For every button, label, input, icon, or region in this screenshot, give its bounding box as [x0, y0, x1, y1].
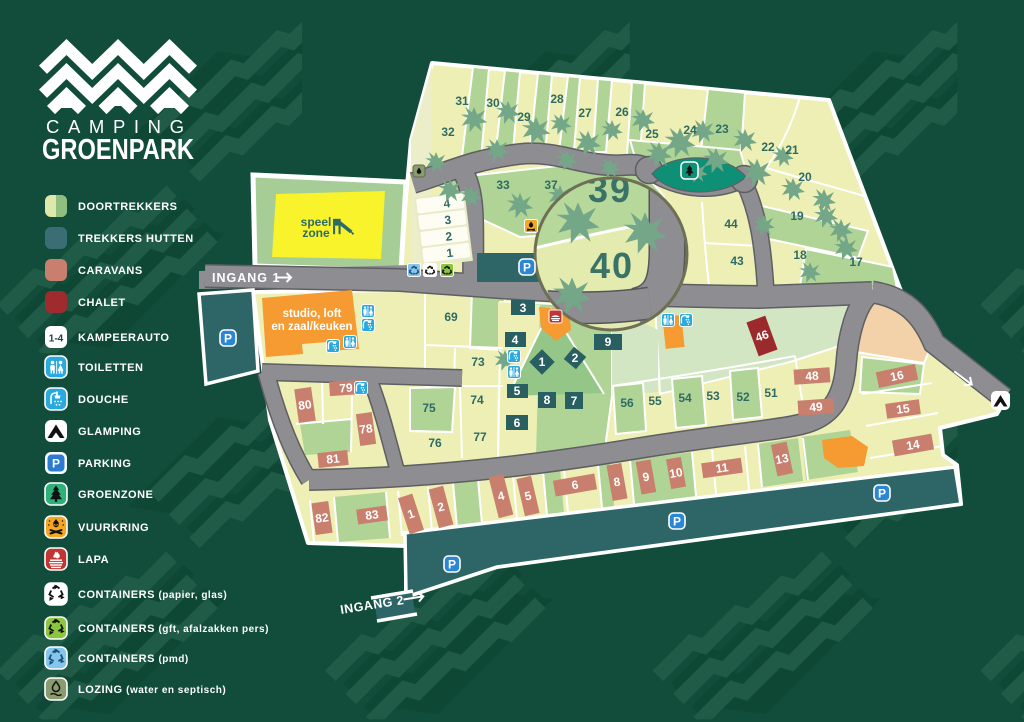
svg-text:studio, loft: studio, loft — [283, 308, 342, 320]
svg-text:CONTAINERS (pmd): CONTAINERS (pmd) — [78, 653, 189, 665]
svg-text:33: 33 — [496, 178, 510, 192]
svg-text:6: 6 — [514, 416, 521, 430]
svg-text:8: 8 — [544, 393, 551, 407]
svg-text:77: 77 — [473, 430, 487, 444]
svg-text:52: 52 — [736, 390, 750, 404]
svg-text:VUURKRING: VUURKRING — [78, 522, 149, 534]
svg-text:GLAMPING: GLAMPING — [78, 426, 141, 438]
svg-text:P: P — [52, 457, 60, 471]
svg-text:74: 74 — [470, 393, 484, 407]
svg-text:11: 11 — [715, 460, 730, 476]
svg-text:78: 78 — [358, 421, 373, 437]
svg-text:43: 43 — [730, 254, 744, 268]
svg-text:53: 53 — [706, 389, 720, 403]
svg-text:28: 28 — [550, 92, 564, 106]
svg-text:18: 18 — [793, 248, 807, 262]
svg-text:1: 1 — [539, 355, 546, 369]
svg-text:DOUCHE: DOUCHE — [78, 394, 129, 406]
svg-text:26: 26 — [615, 105, 629, 119]
svg-text:7: 7 — [571, 394, 578, 408]
svg-text:en zaal/keuken: en zaal/keuken — [271, 321, 352, 333]
svg-text:2: 2 — [572, 351, 579, 365]
svg-text:81: 81 — [326, 451, 341, 466]
svg-text:PARKING: PARKING — [78, 458, 131, 470]
svg-text:30: 30 — [486, 96, 500, 110]
svg-text:48: 48 — [805, 369, 820, 384]
svg-text:5: 5 — [514, 384, 521, 398]
svg-text:29: 29 — [517, 110, 531, 124]
svg-text:GROENZONE: GROENZONE — [78, 489, 153, 501]
svg-text:15: 15 — [895, 401, 910, 417]
svg-text:9: 9 — [605, 335, 612, 349]
svg-text:TOILETTEN: TOILETTEN — [78, 362, 143, 374]
svg-text:80: 80 — [297, 397, 312, 413]
svg-text:44: 44 — [724, 217, 738, 231]
svg-text:21: 21 — [785, 143, 799, 157]
svg-text:3: 3 — [520, 301, 527, 315]
svg-text:INGANG 1: INGANG 1 — [212, 271, 280, 285]
svg-text:23: 23 — [715, 122, 729, 136]
svg-text:CONTAINERS (gft, afalzakken pe: CONTAINERS (gft, afalzakken pers) — [78, 623, 269, 635]
svg-text:83: 83 — [364, 507, 379, 523]
svg-text:10: 10 — [668, 465, 684, 481]
svg-text:DOORTREKKERS: DOORTREKKERS — [78, 201, 178, 213]
svg-text:1-4: 1-4 — [49, 334, 64, 345]
svg-text:LOZING (water en septisch): LOZING (water en septisch) — [78, 684, 226, 696]
svg-text:51: 51 — [764, 386, 778, 400]
svg-text:27: 27 — [578, 106, 592, 120]
svg-text:32: 32 — [441, 125, 455, 139]
svg-text:49: 49 — [809, 400, 824, 415]
svg-text:CONTAINERS (papier, glas): CONTAINERS (papier, glas) — [78, 589, 227, 601]
svg-text:4: 4 — [512, 333, 519, 347]
svg-text:CARAVANS: CARAVANS — [78, 265, 143, 277]
svg-text:55: 55 — [648, 394, 662, 408]
svg-text:31: 31 — [455, 94, 469, 108]
svg-text:14: 14 — [905, 437, 921, 453]
svg-text:24: 24 — [683, 123, 697, 137]
svg-text:69: 69 — [444, 310, 458, 324]
svg-text:73: 73 — [471, 355, 485, 369]
svg-text:19: 19 — [790, 209, 804, 223]
svg-text:17: 17 — [849, 255, 863, 269]
svg-text:40: 40 — [590, 245, 634, 286]
svg-text:82: 82 — [314, 510, 329, 526]
svg-text:KAMPEERAUTO: KAMPEERAUTO — [78, 332, 169, 344]
svg-text:54: 54 — [678, 391, 692, 405]
svg-text:75: 75 — [422, 401, 436, 415]
svg-text:LAPA: LAPA — [78, 554, 109, 566]
svg-text:CHALET: CHALET — [78, 297, 126, 309]
svg-text:20: 20 — [798, 170, 812, 184]
svg-text:22: 22 — [761, 140, 775, 154]
svg-text:25: 25 — [645, 127, 659, 141]
svg-text:GROENPARK: GROENPARK — [42, 134, 194, 166]
svg-text:79: 79 — [339, 381, 354, 396]
svg-text:37: 37 — [544, 178, 558, 192]
svg-text:76: 76 — [428, 436, 442, 450]
svg-text:56: 56 — [620, 396, 634, 410]
svg-text:TREKKERS HUTTEN: TREKKERS HUTTEN — [78, 233, 194, 245]
svg-text:zone: zone — [302, 226, 330, 240]
